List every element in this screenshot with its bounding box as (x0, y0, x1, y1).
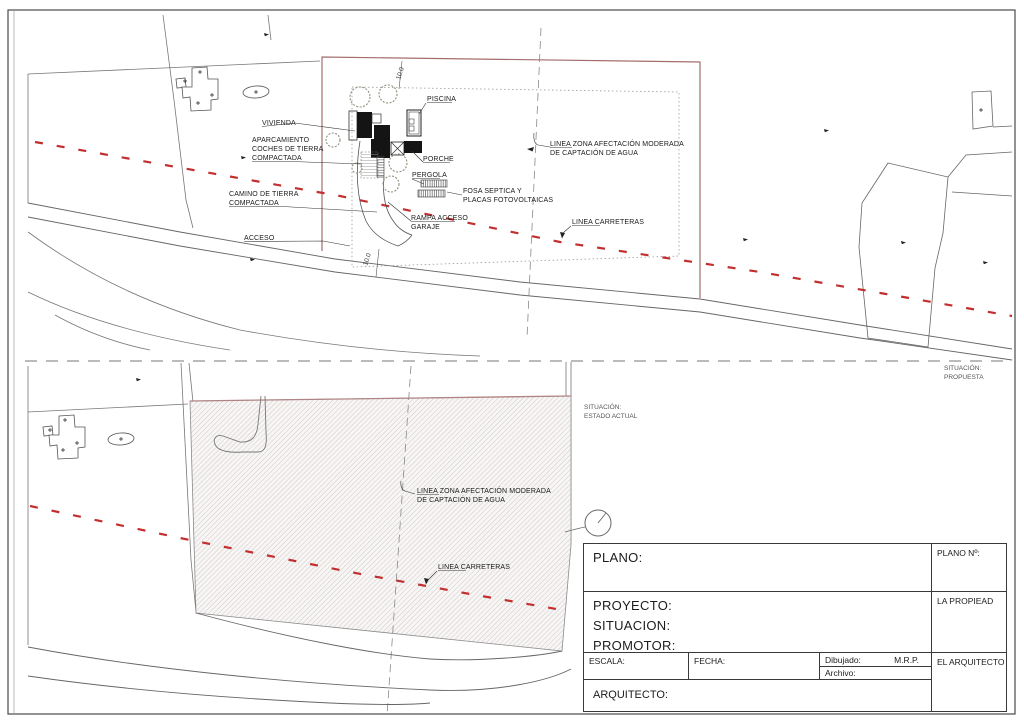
label-porche: PORCHE (423, 156, 454, 163)
fecha-label: FECHA: (694, 656, 725, 666)
arquitecto-label: ARQUITECTO: (593, 689, 668, 701)
label-linea-zona-bottom-2: DE CAPTACIÓN DE AGUA (417, 495, 505, 504)
pergola-strips (418, 180, 447, 197)
label-linea-zona-1: LINEA ZONA AFECTACIÓN MODERADA (550, 139, 684, 148)
dibujado-value: M.R.P. (894, 655, 919, 666)
label-linea-zona-2: DE CAPTACIÓN DE AGUA (550, 148, 638, 157)
label-fosa-2: PLACAS FOTOVOLTAICAS (463, 197, 553, 204)
label-fosa-1: FOSA SEPTICA Y (463, 188, 522, 195)
label-situacion-estado-2: ESTADO ACTUAL (584, 413, 638, 420)
title-block-arquitecto: ARQUITECTO: (584, 680, 932, 711)
label-piscina: PISCINA (427, 96, 456, 103)
proyecto-label: PROYECTO: (593, 596, 931, 616)
label-vivienda: VIVIENDA (262, 120, 296, 127)
situacion-label: SITUACION: (593, 616, 931, 636)
label-rampa-1: RAMPA ACCESO (411, 215, 468, 222)
dibujado-label: Dibujado: (825, 655, 861, 666)
neighbour-houses (176, 67, 983, 112)
title-block: PLANO: PLANO Nº: PROYECTO: SITUACION: PR… (583, 543, 1007, 712)
title-block-plano: PLANO: (584, 544, 932, 592)
plano-label: PLANO: (593, 550, 642, 565)
label-aparcamiento-2: COCHES DE TIERRA (252, 146, 324, 153)
el-arquitecto-label: EL ARQUITECTO (937, 657, 1005, 667)
north-compass-icon (565, 510, 611, 536)
title-block-propiedad: LA PROPIEAD (932, 592, 1006, 653)
la-propiedad-label: LA PROPIEAD (937, 596, 993, 606)
label-situacion-propuesta-1: SITUACIÓN: (944, 363, 981, 372)
label-pergola: PERGOLA (412, 172, 447, 179)
markers (241, 33, 988, 264)
drawing-sheet: 10.0 10.0 (0, 0, 1024, 724)
parking-area (361, 152, 378, 178)
plan-estado: SITUACIÓN: ESTADO ACTUAL LINEA ZONA AFEC… (28, 362, 638, 716)
label-aparcamiento-3: COMPACTADA (252, 155, 302, 162)
setback-dotted-line (352, 87, 679, 267)
water-zone-centerline (527, 28, 541, 338)
label-linea-carreteras-bottom: LINEA CARRETERAS (438, 564, 510, 571)
right-parcels (859, 91, 1012, 347)
label-linea-zona-bottom-1: LINEA ZONA AFECTACIÓN MODERADA (417, 486, 551, 495)
title-block-plano-n: PLANO Nº: (932, 544, 1006, 592)
garage-ramp (377, 156, 384, 177)
hatched-parcel (190, 396, 571, 651)
label-rampa-2: GARAJE (411, 224, 440, 231)
porche-structures (391, 141, 422, 155)
label-camino-2: COMPACTADA (229, 200, 279, 207)
plano-n-label: PLANO Nº: (937, 548, 980, 558)
label-camino-1: CAMINO DE TIERRA (229, 191, 299, 198)
label-acceso: ACCESO (244, 235, 275, 242)
title-block-el-arquitecto: EL ARQUITECTO (932, 653, 1006, 711)
title-block-escala: ESCALA: (584, 653, 689, 680)
title-block-proyecto: PROYECTO: SITUACION: PROMOTOR: (584, 592, 932, 653)
dim-10-top: 10.0 (395, 66, 406, 81)
linea-carreteras-dashed (35, 142, 1012, 316)
dim-10-bottom: 10.0 (362, 252, 373, 267)
neighbour-houses-bottom (43, 415, 134, 459)
escala-label: ESCALA: (589, 656, 625, 666)
title-block-archivo: Archivo: (820, 667, 932, 680)
label-situacion-propuesta-2: PROPUESTA (944, 374, 984, 381)
title-block-dibujado: Dibujado: M.R.P. (820, 653, 932, 667)
label-linea-carreteras: LINEA CARRETERAS (572, 219, 644, 226)
terrain-lines (28, 15, 480, 356)
vivienda-building (357, 112, 372, 138)
road-lines (28, 203, 1012, 360)
title-block-fecha: FECHA: (689, 653, 820, 680)
label-situacion-estado-1: SITUACIÓN: (584, 402, 621, 411)
label-aparcamiento-1: APARCAMIENTO (252, 137, 310, 144)
archivo-label: Archivo: (825, 668, 856, 678)
plan-propuesta: 10.0 10.0 (28, 15, 1012, 381)
